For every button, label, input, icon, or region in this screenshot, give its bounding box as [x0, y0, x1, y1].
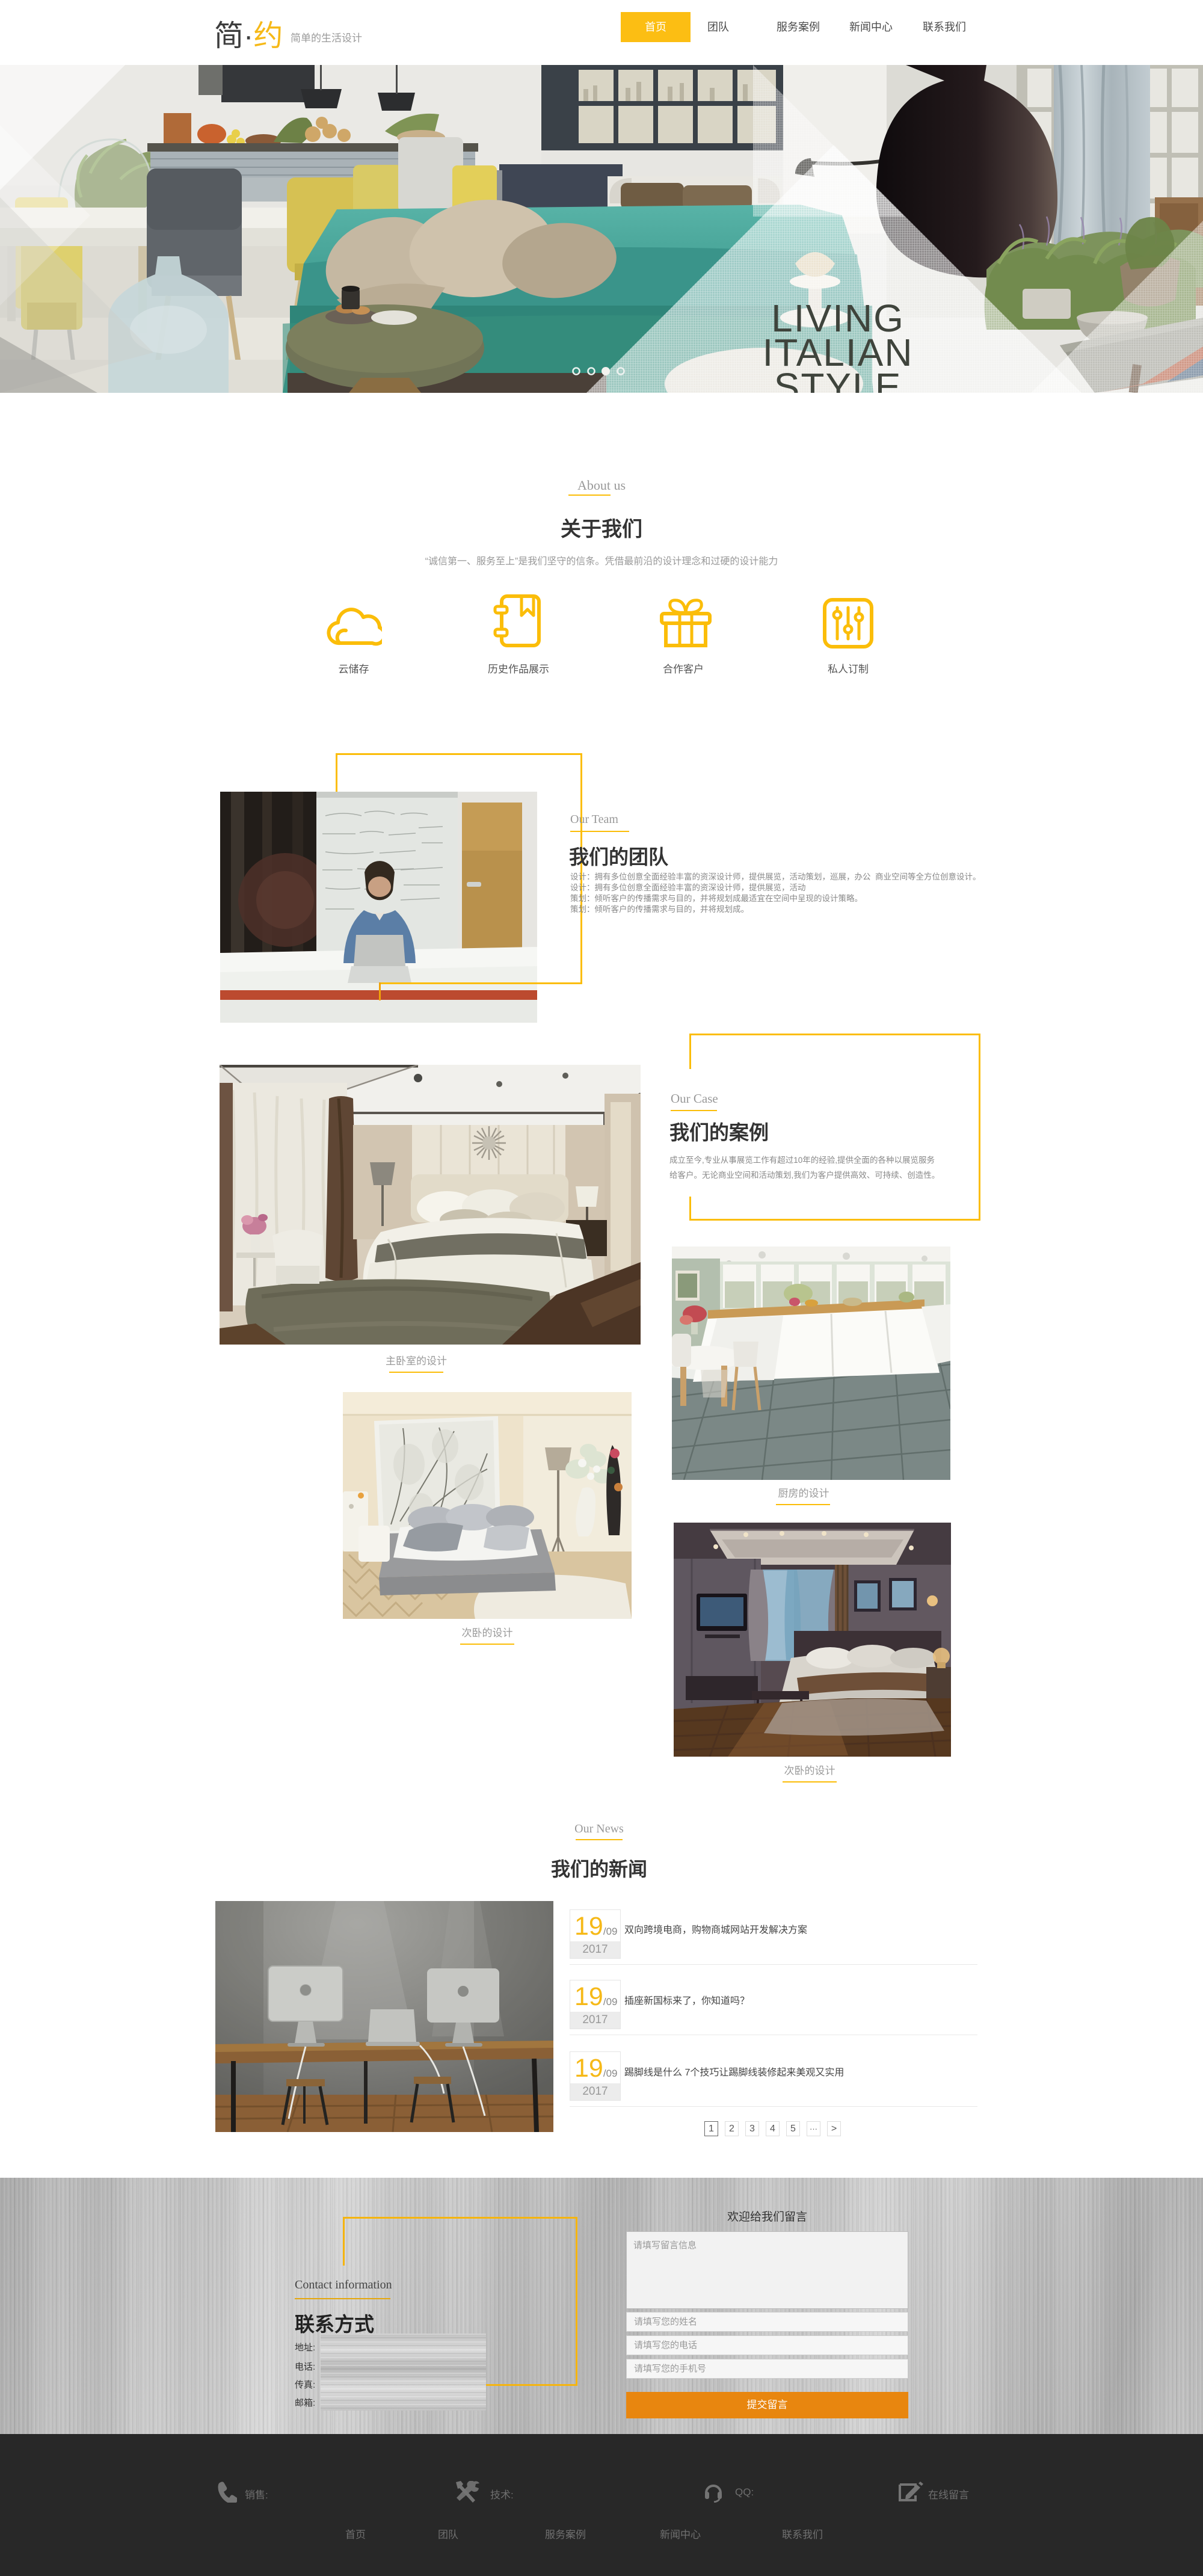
svg-text:STYLE: STYLE [774, 365, 902, 393]
